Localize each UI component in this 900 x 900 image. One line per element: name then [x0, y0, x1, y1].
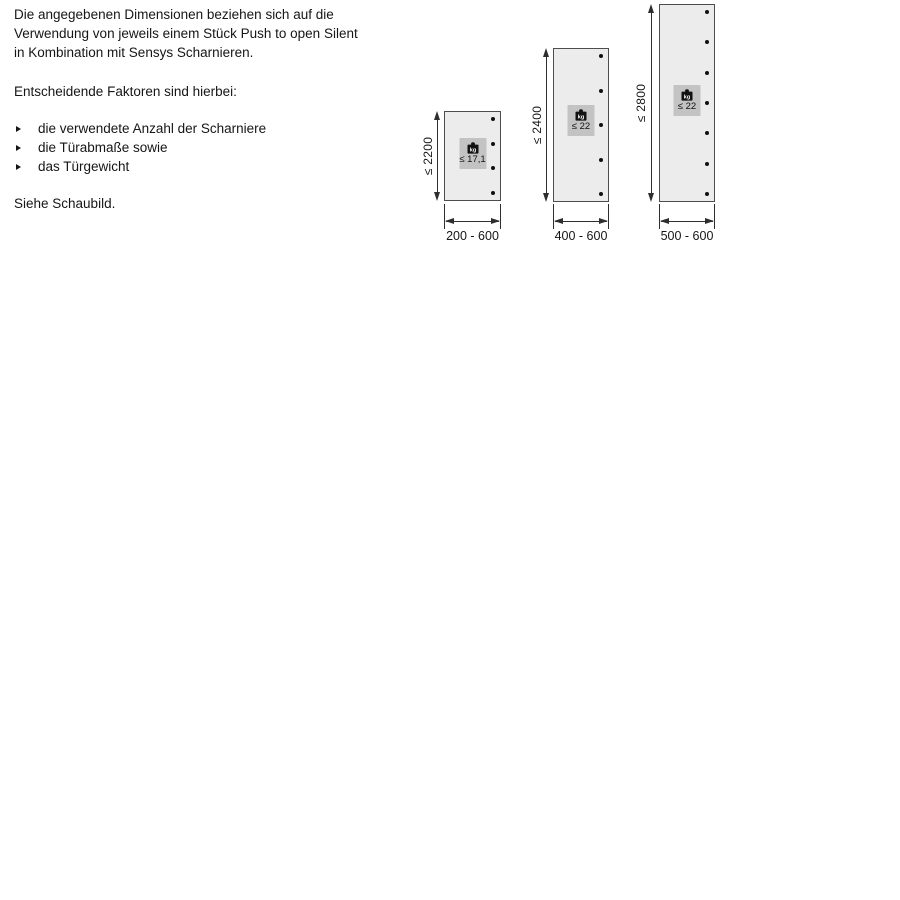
bullet-triangle-icon	[16, 145, 21, 151]
height-dimension-arrow	[648, 4, 655, 202]
list-item: die verwendete Anzahl der Scharniere	[16, 119, 266, 138]
kg-unit-label: kg	[684, 94, 690, 100]
door-panel: kg ≤ 22	[659, 4, 715, 202]
list-item: das Türgewicht	[16, 157, 266, 176]
factor-label: die Türabmaße sowie	[38, 138, 168, 157]
intro-paragraph: Die angegebenen Dimensionen beziehen sic…	[14, 5, 358, 62]
bullet-triangle-icon	[16, 126, 21, 132]
intro-line: Die angegebenen Dimensionen beziehen sic…	[14, 5, 358, 24]
hinge-dot	[705, 192, 709, 196]
factors-heading: Entscheidende Faktoren sind hierbei:	[14, 82, 237, 101]
width-dimension-arrow	[659, 203, 715, 229]
list-item: die Türabmaße sowie	[16, 138, 266, 157]
arrow-down-icon	[648, 193, 654, 202]
max-weight-value: ≤ 22	[678, 102, 696, 112]
door-diagram-tall: ≤ 2800 kg ≤ 22 500 - 600	[420, 0, 740, 250]
intro-line: in Kombination mit Sensys Scharnieren.	[14, 43, 358, 62]
hinge-dot	[705, 40, 709, 44]
see-diagram-note: Siehe Schaubild.	[14, 194, 115, 213]
arrow-right-icon	[705, 218, 714, 224]
bullet-triangle-icon	[16, 164, 21, 170]
hinge-dot	[705, 162, 709, 166]
hinge-dot	[705, 101, 709, 105]
factor-label: das Türgewicht	[38, 157, 129, 176]
extension-line	[714, 204, 715, 229]
intro-line: Verwendung von jeweils einem Stück Push …	[14, 24, 358, 43]
arrow-left-icon	[660, 218, 669, 224]
door-height-label: ≤ 2800	[634, 4, 648, 202]
kg-weight-icon: kg	[681, 89, 694, 101]
extension-line	[659, 204, 660, 229]
door-size-figure: ≤ 2200 kg ≤ 17,1 200 - 600	[420, 0, 740, 250]
factor-label: die verwendete Anzahl der Scharniere	[38, 119, 266, 138]
hinge-dot	[705, 71, 709, 75]
factors-list: die verwendete Anzahl der Scharniere die…	[16, 119, 266, 176]
weight-badge: kg ≤ 22	[674, 85, 701, 116]
dimension-line	[651, 10, 652, 196]
hinge-dot	[705, 131, 709, 135]
door-width-label: 500 - 600	[639, 229, 735, 243]
hinge-dot	[705, 10, 709, 14]
